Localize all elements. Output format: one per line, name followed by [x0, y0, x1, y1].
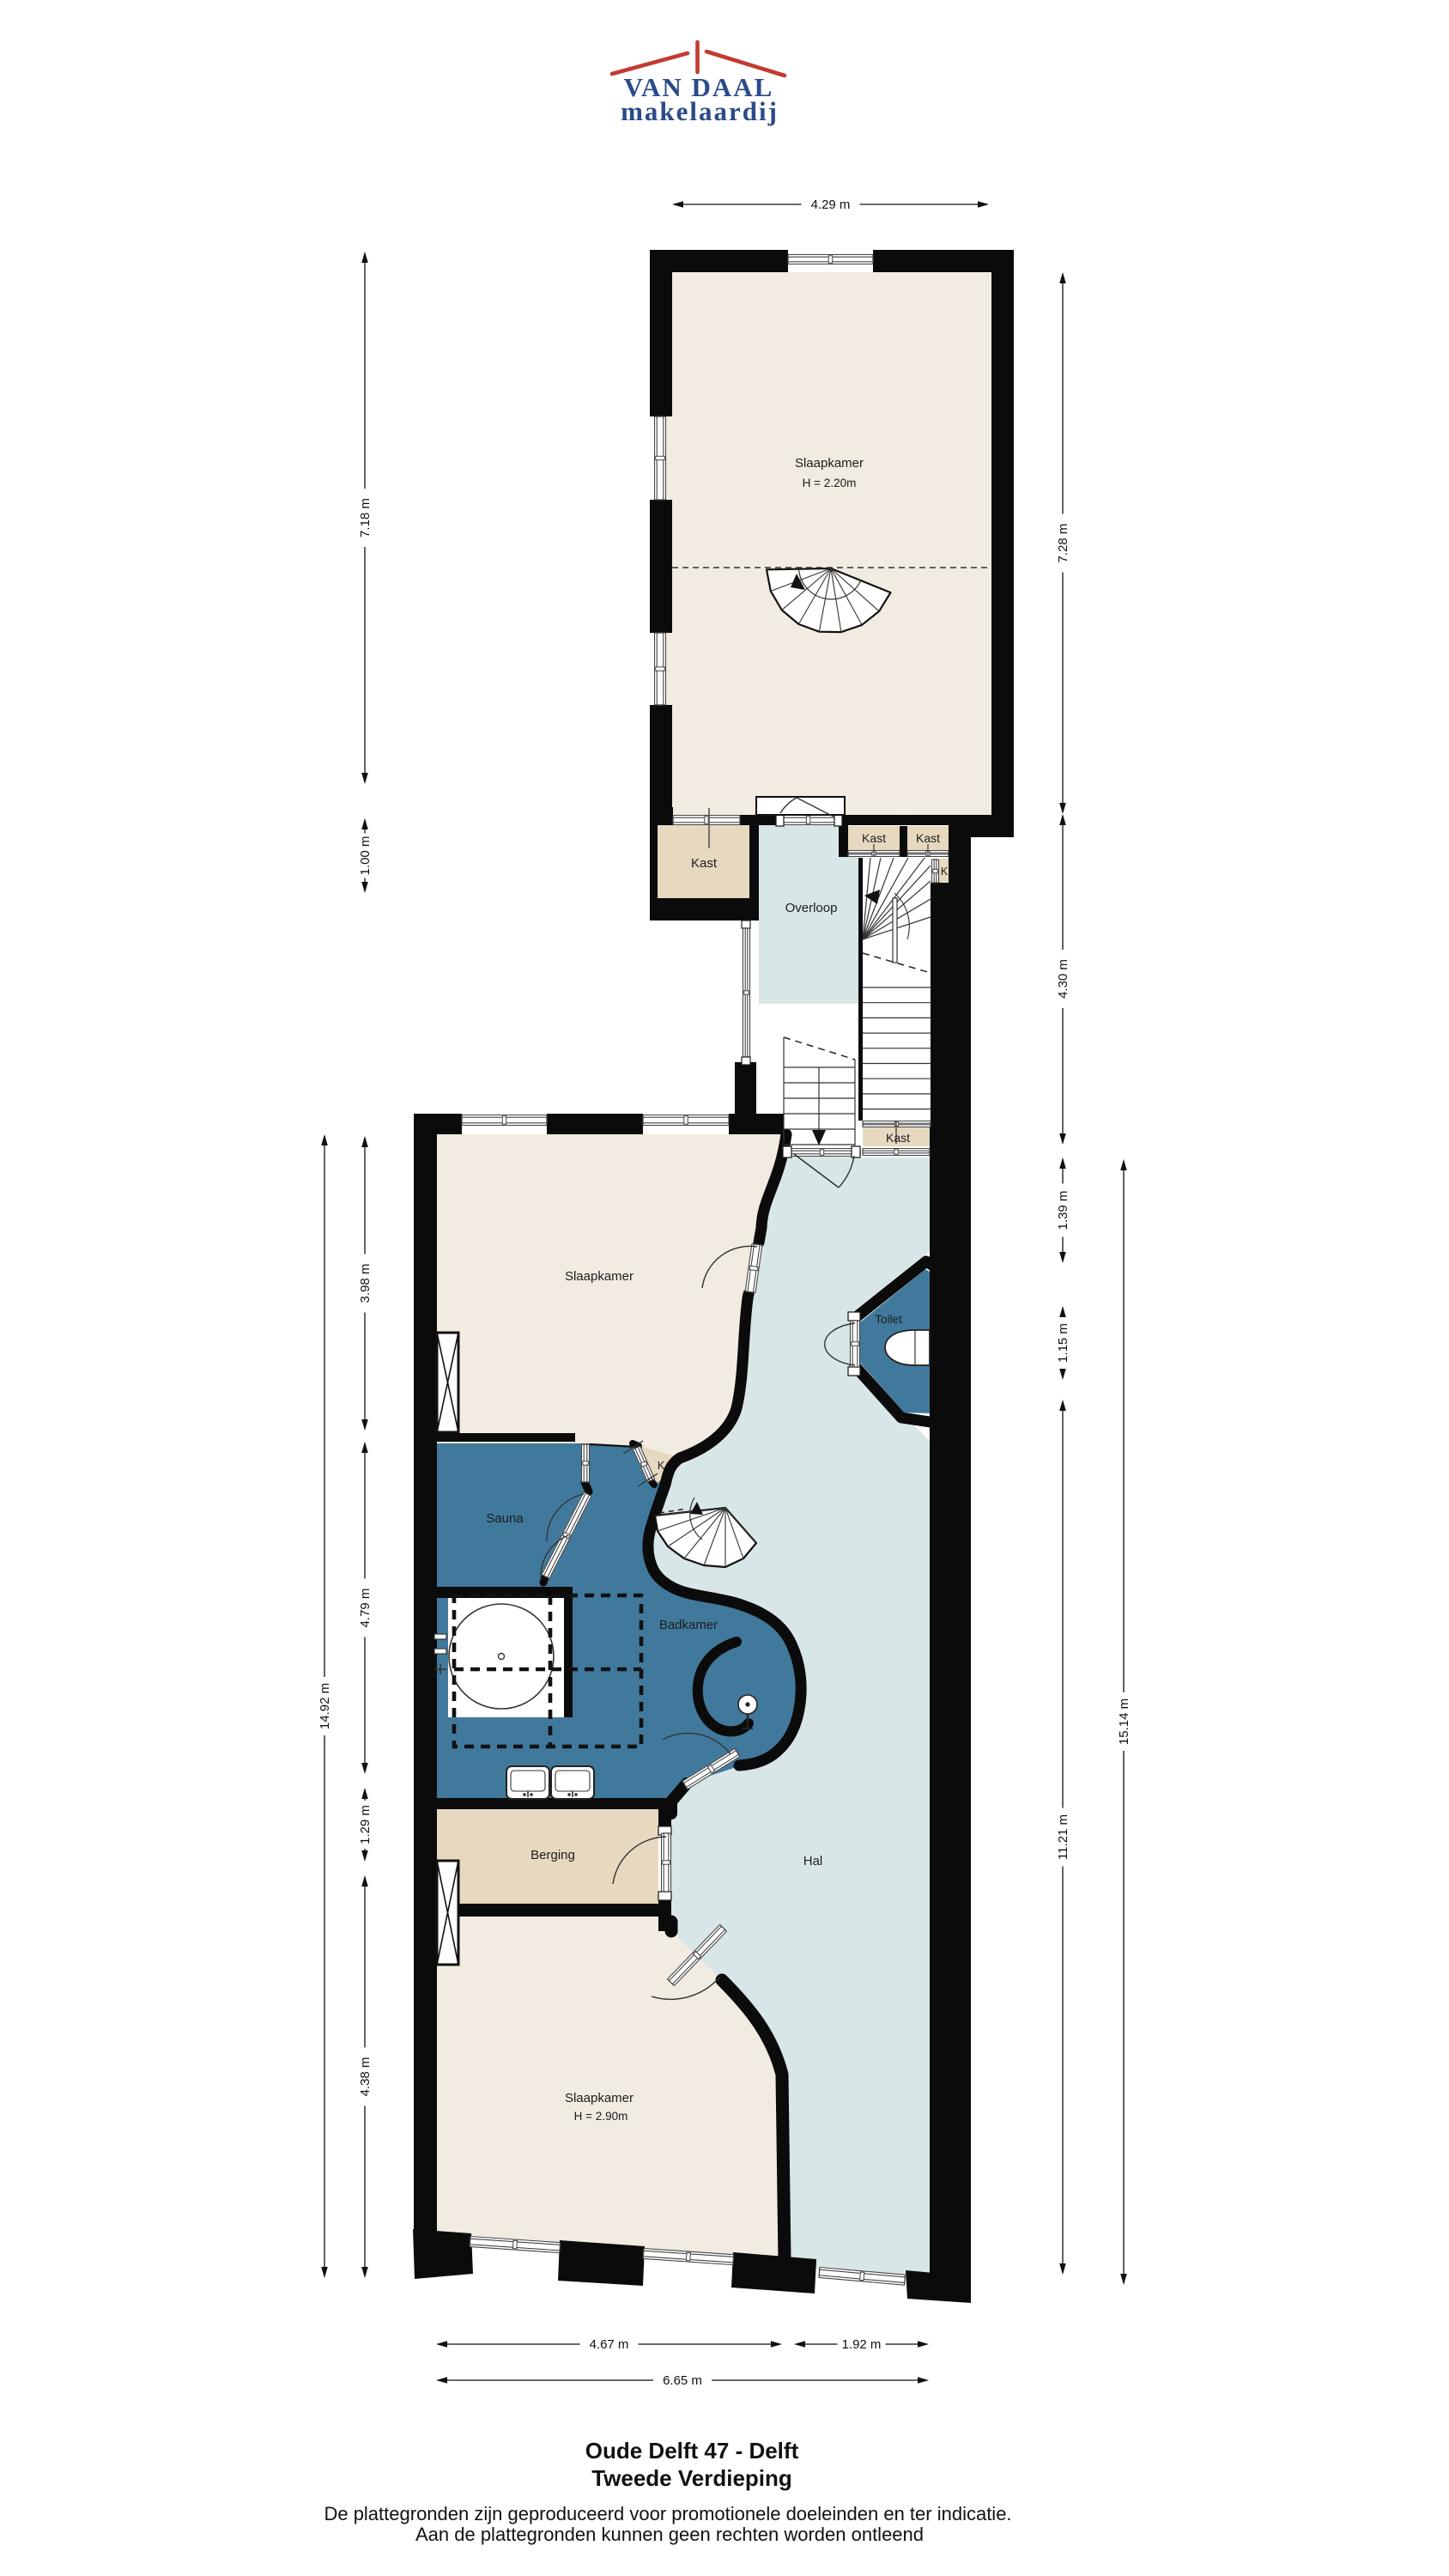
svg-text:makelaardij: makelaardij — [621, 96, 779, 126]
svg-text:11.21 m: 11.21 m — [1056, 1814, 1070, 1860]
svg-text:4.38 m: 4.38 m — [358, 2057, 373, 2097]
svg-text:De plattegronden zijn geproduc: De plattegronden zijn geproduceerd voor … — [324, 2503, 1011, 2524]
svg-text:4.29 m: 4.29 m — [811, 197, 851, 212]
svg-text:Badkamer: Badkamer — [659, 1618, 718, 1632]
svg-text:Overloop: Overloop — [785, 901, 838, 915]
svg-text:1.92 m: 1.92 m — [842, 2337, 882, 2352]
svg-text:4.30 m: 4.30 m — [1056, 959, 1070, 999]
svg-text:3.98 m: 3.98 m — [358, 1264, 373, 1303]
svg-text:Kast: Kast — [886, 1131, 910, 1145]
svg-text:1.39 m: 1.39 m — [1056, 1191, 1070, 1230]
svg-text:4.79 m: 4.79 m — [358, 1589, 373, 1628]
svg-text:K: K — [658, 1460, 665, 1472]
svg-text:1.15 m: 1.15 m — [1056, 1323, 1070, 1363]
svg-text:Kast: Kast — [691, 856, 718, 871]
svg-text:Sauna: Sauna — [486, 1511, 524, 1526]
svg-text:Kast: Kast — [916, 831, 940, 845]
svg-text:6.65 m: 6.65 m — [663, 2373, 702, 2388]
svg-text:1.29 m: 1.29 m — [358, 1805, 373, 1844]
svg-text:1.00 m: 1.00 m — [358, 836, 373, 876]
svg-text:Berging: Berging — [530, 1848, 575, 1862]
svg-text:Tweede Verdieping: Tweede Verdieping — [591, 2465, 792, 2491]
svg-text:Aan de plattegronden kunnen ge: Aan de plattegronden kunnen geen rechten… — [415, 2524, 924, 2545]
svg-text:Hal: Hal — [803, 1854, 823, 1868]
svg-text:7.28 m: 7.28 m — [1056, 524, 1070, 563]
svg-text:Oude Delft 47 - Delft: Oude Delft 47 - Delft — [585, 2438, 799, 2464]
svg-text:H = 2.20m: H = 2.20m — [803, 477, 857, 489]
svg-text:15.14 m: 15.14 m — [1117, 1698, 1131, 1745]
svg-text:Kast: Kast — [862, 831, 886, 845]
svg-text:7.18 m: 7.18 m — [358, 498, 373, 538]
svg-text:4.67 m: 4.67 m — [590, 2337, 629, 2352]
svg-text:Slaapkamer: Slaapkamer — [565, 2091, 634, 2105]
svg-text:14.92 m: 14.92 m — [318, 1683, 332, 1729]
svg-text:Slaapkamer: Slaapkamer — [565, 1269, 634, 1284]
svg-text:Toilet: Toilet — [875, 1313, 902, 1326]
svg-text:K: K — [941, 866, 949, 878]
svg-text:Slaapkamer: Slaapkamer — [795, 456, 864, 471]
svg-text:H = 2.90m: H = 2.90m — [574, 2110, 628, 2123]
